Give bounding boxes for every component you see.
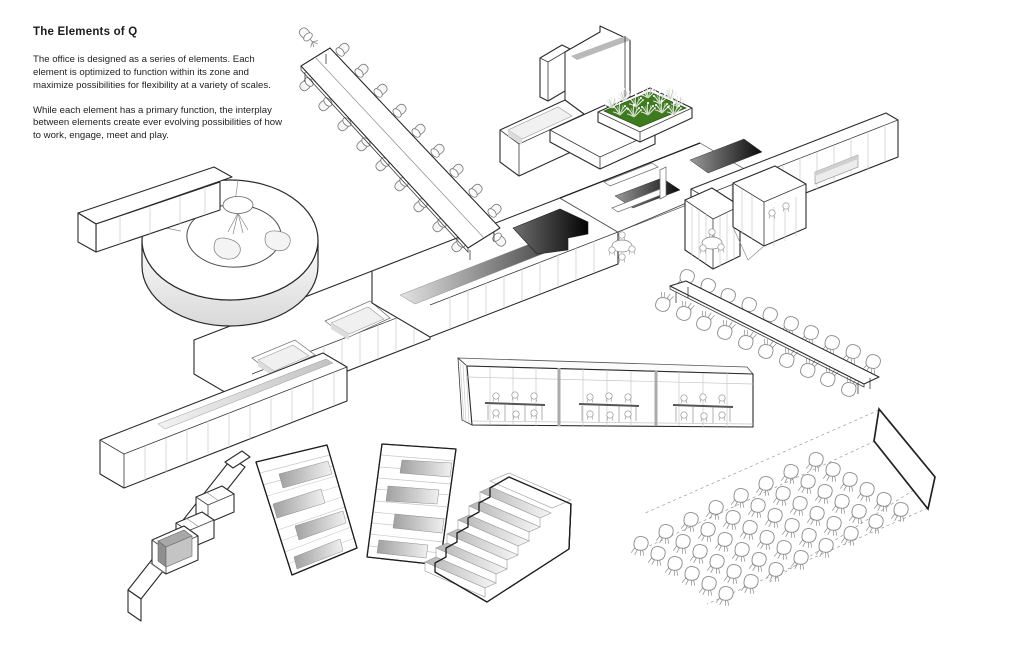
zigzag-storage-box [152, 526, 198, 574]
page-title: The Elements of Q [33, 26, 283, 38]
presentation-area [630, 409, 935, 608]
spiral-bench [78, 167, 318, 326]
lounge-planter-unit [500, 26, 692, 176]
spiral-lounge-chair [265, 231, 290, 251]
intro-paragraph-2: While each element has a primary functio… [33, 105, 283, 144]
intro-paragraph-1: The office is designed as a series of el… [33, 54, 283, 93]
conference-table-long [297, 26, 507, 260]
audience-chairs [630, 451, 909, 608]
glass-meeting-rooms [458, 358, 753, 427]
tiered-seating-left [256, 445, 357, 575]
diagram-page: The Elements of Q The office is designed… [0, 0, 1024, 663]
intro-text: The Elements of Q The office is designed… [33, 26, 283, 155]
spine-middle-band [372, 198, 618, 337]
table-top [301, 48, 500, 248]
page-title-text: The Elements of Q [33, 26, 137, 38]
